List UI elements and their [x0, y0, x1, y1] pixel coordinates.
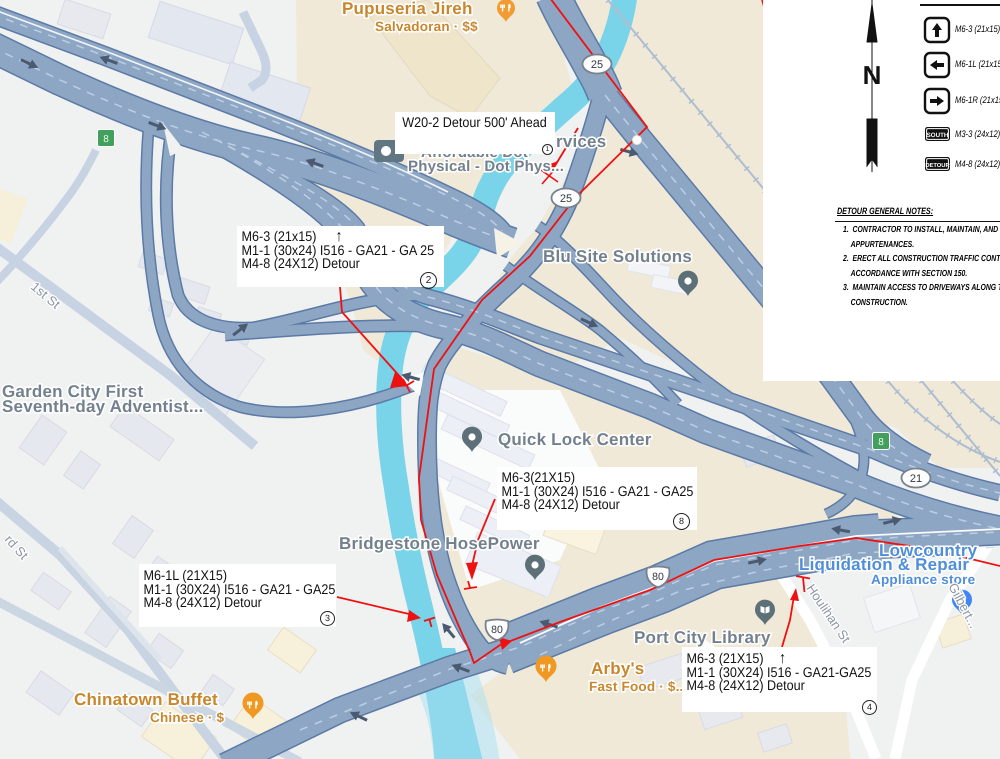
svg-text:Fast Food · $...: Fast Food · $...	[589, 679, 687, 694]
svg-text:DETOUR: DETOUR	[925, 162, 950, 169]
svg-text:N: N	[863, 60, 882, 90]
svg-text:Physical - Dot Phys...: Physical - Dot Phys...	[408, 158, 564, 175]
svg-text:rvices: rvices	[556, 132, 606, 151]
svg-text:Bridgestone HosePower: Bridgestone HosePower	[339, 534, 540, 553]
svg-text:Arby's: Arby's	[591, 659, 644, 678]
svg-text:80: 80	[491, 624, 503, 636]
svg-text:Salvadoran · $$: Salvadoran · $$	[375, 19, 478, 34]
svg-text:80: 80	[652, 571, 664, 583]
svg-text:21: 21	[910, 473, 922, 485]
svg-text:8: 8	[878, 437, 884, 448]
svg-text:25: 25	[560, 193, 572, 205]
svg-text:Pupuseria Jireh: Pupuseria Jireh	[342, 0, 473, 18]
svg-text:SOUTH: SOUTH	[927, 132, 949, 139]
svg-text:Chinatown Buffet: Chinatown Buffet	[74, 690, 218, 709]
svg-text:Chinese · $: Chinese · $	[150, 710, 225, 725]
svg-text:8: 8	[103, 134, 109, 145]
svg-text:Port City Library: Port City Library	[634, 628, 771, 647]
svg-text:Blu Site Solutions: Blu Site Solutions	[543, 247, 692, 266]
svg-text:25: 25	[591, 59, 603, 71]
svg-text:Seventh-day Adventist...: Seventh-day Adventist...	[2, 397, 204, 416]
svg-text:Quick Lock Center: Quick Lock Center	[498, 430, 652, 449]
